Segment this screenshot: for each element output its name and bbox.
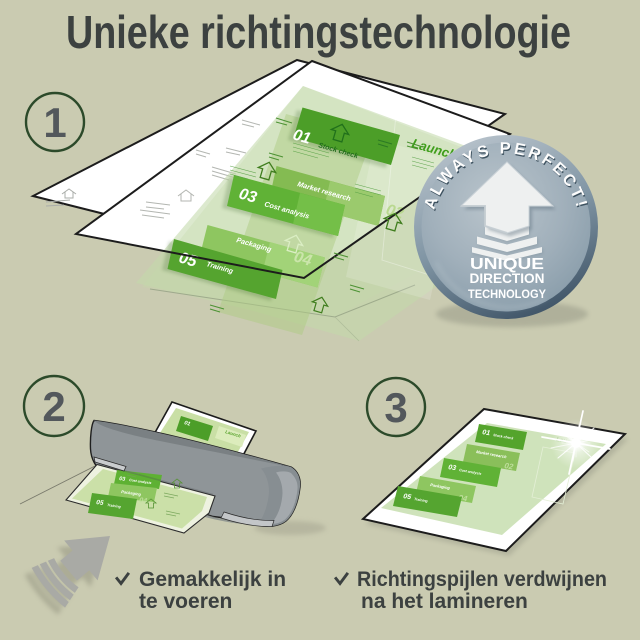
svg-text:1: 1: [43, 99, 66, 146]
svg-text:na het lamineren: na het lamineren: [361, 590, 528, 613]
svg-text:03: 03: [448, 464, 457, 472]
svg-text:Richtingspijlen verdwijnen: Richtingspijlen verdwijnen: [357, 568, 607, 591]
svg-text:05: 05: [96, 499, 105, 507]
svg-text:Unieke richtingstechnologie: Unieke richtingstechnologie: [66, 6, 571, 58]
svg-text:2: 2: [42, 383, 65, 430]
svg-text:05: 05: [403, 493, 412, 501]
svg-text:03: 03: [119, 476, 126, 483]
svg-text:DIRECTION: DIRECTION: [470, 270, 545, 286]
svg-text:TECHNOLOGY: TECHNOLOGY: [468, 287, 546, 301]
svg-text:3: 3: [384, 384, 407, 431]
svg-text:04: 04: [139, 497, 148, 505]
svg-text:te voeren: te voeren: [139, 590, 232, 613]
svg-text:01: 01: [482, 429, 491, 437]
svg-text:Gemakkelijk in: Gemakkelijk in: [139, 568, 286, 591]
